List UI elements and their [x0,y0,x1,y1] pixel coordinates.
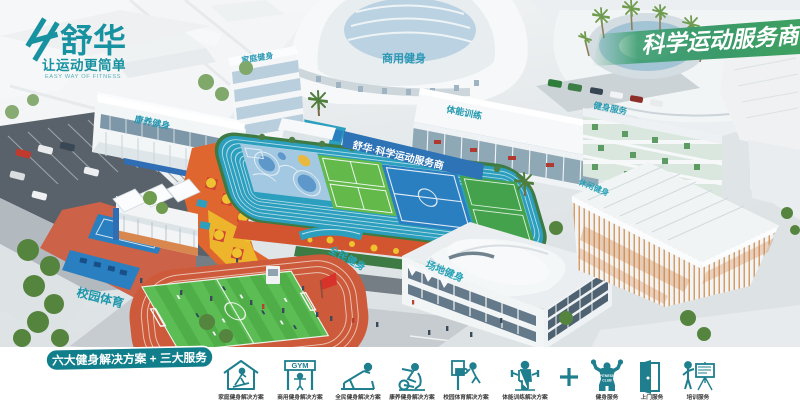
svg-text:GYM: GYM [291,361,308,370]
svg-text:舒华: 舒华 [60,22,126,59]
svg-text:让运动更简单: 让运动更简单 [42,57,126,73]
svg-text:体能训练解决方案: 体能训练解决方案 [502,393,548,401]
svg-text:校园体育解决方案: 校园体育解决方案 [443,393,489,401]
svg-text:康养健身解决方案: 康养健身解决方案 [388,393,435,401]
svg-text:健身服务: 健身服务 [596,393,619,401]
svg-text:CLUB: CLUB [602,379,612,383]
svg-text:家庭健身解决方案: 家庭健身解决方案 [218,393,264,401]
svg-text:EASY WAY OF FITNESS: EASY WAY OF FITNESS [45,74,121,80]
svg-text:全民健身解决方案: 全民健身解决方案 [334,393,381,401]
svg-text:商用健身解决方案: 商用健身解决方案 [277,393,323,401]
svg-text:上门服务: 上门服务 [641,393,664,401]
svg-text:商用健身: 商用健身 [382,51,426,65]
svg-text:培训服务: 培训服务 [687,393,710,401]
svg-text:FITNESS: FITNESS [600,374,615,378]
